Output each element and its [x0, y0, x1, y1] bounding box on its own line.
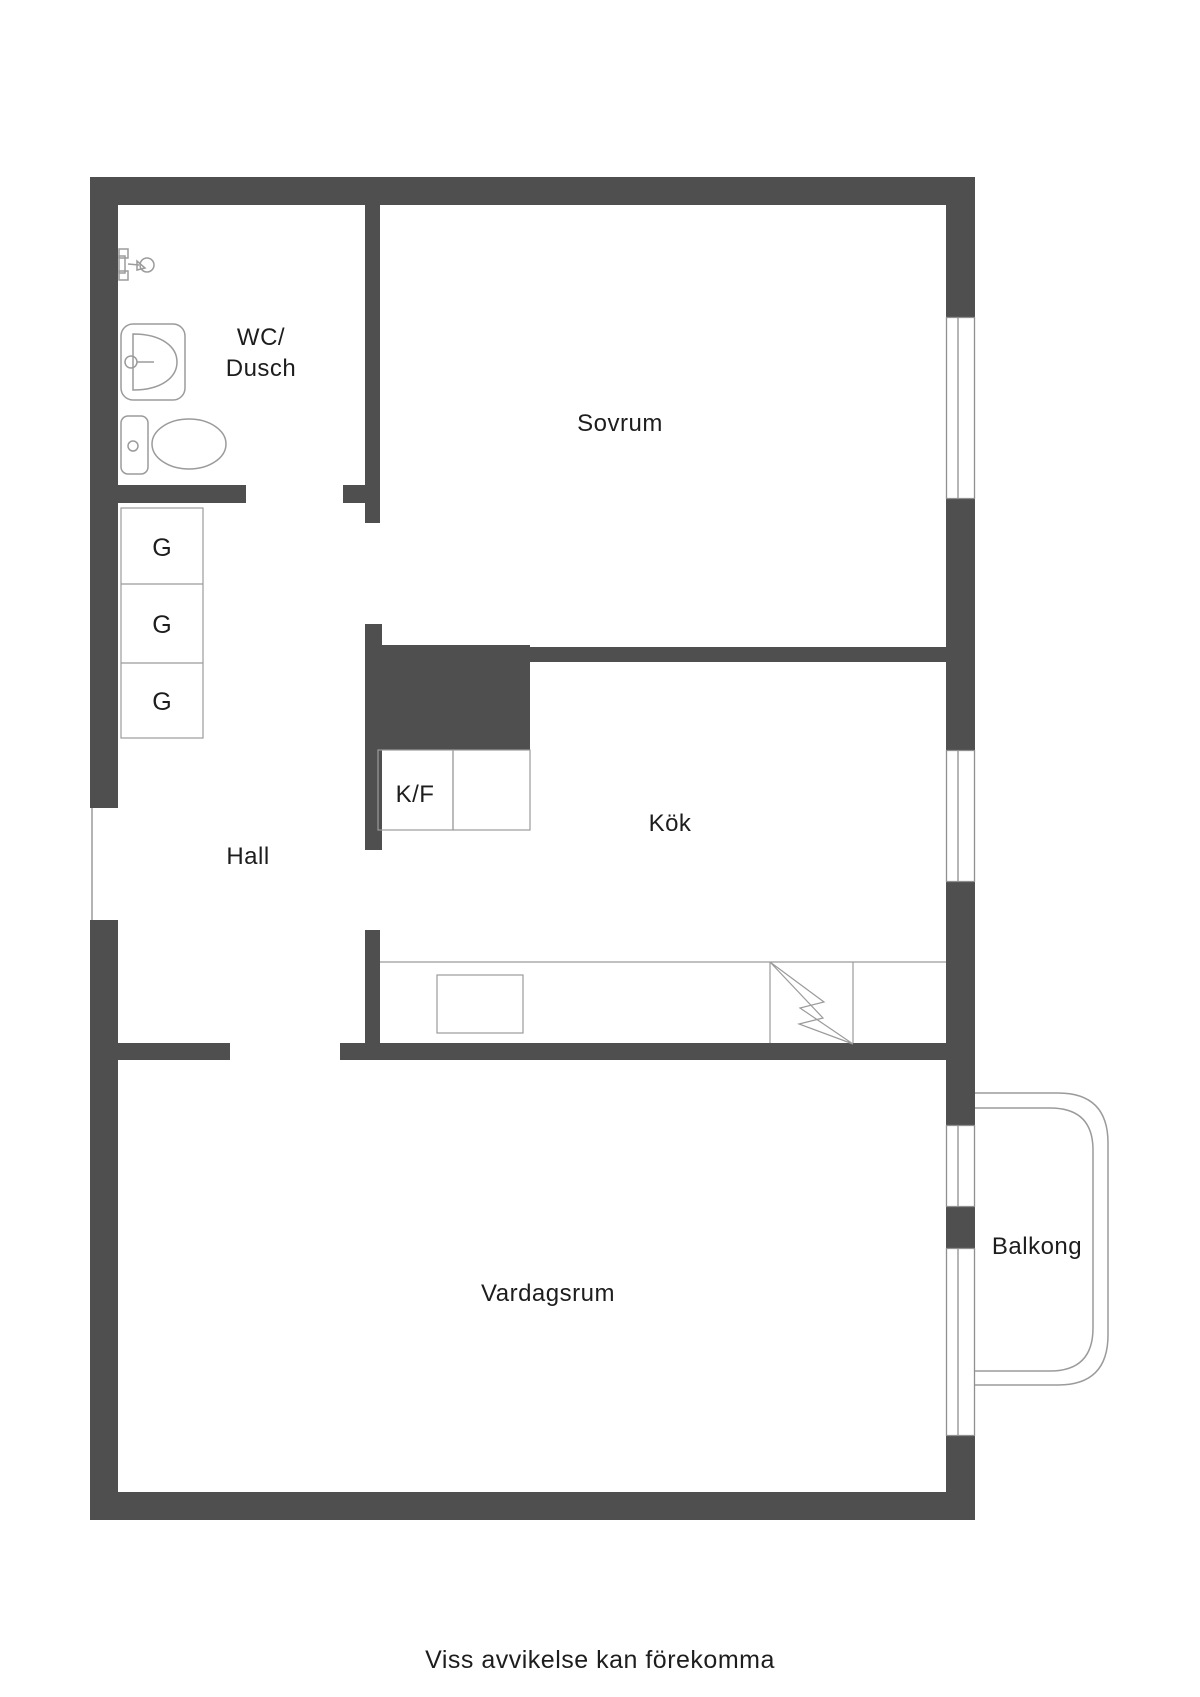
window-balcony-door	[946, 1248, 975, 1436]
wall-kitchen-left-lower	[365, 930, 380, 1043]
label-kok: Kök	[649, 810, 692, 837]
bathroom-sink-icon	[121, 324, 185, 400]
wall-sovrum-kok-divider	[530, 647, 946, 662]
wall-bathroom-bottom-left	[118, 485, 246, 503]
wall-kitchen-bottom	[340, 1043, 946, 1060]
wall-bottom	[90, 1492, 975, 1520]
wall-right-seg4	[946, 1207, 975, 1248]
label-hall: Hall	[226, 843, 269, 870]
wall-kf-block	[365, 645, 530, 750]
label-closet-1: G	[152, 534, 171, 562]
label-sovrum: Sovrum	[577, 410, 663, 437]
wall-right-seg3	[946, 882, 975, 1125]
wall-left-upper	[90, 177, 118, 808]
wall-bathroom-sovrum	[365, 205, 380, 523]
shower-icon	[119, 249, 154, 280]
stove-lightning-icon	[770, 962, 853, 1044]
label-balkong: Balkong	[992, 1233, 1082, 1260]
toilet-icon	[121, 416, 226, 474]
label-wc-line1: WC/	[237, 324, 285, 351]
label-kf: K/F	[396, 781, 435, 808]
label-vardagsrum: Vardagsrum	[481, 1280, 615, 1307]
walls-layer	[90, 177, 975, 1520]
windows-layer	[946, 317, 975, 1436]
floorplan-drawing: WC/ Dusch Sovrum G G G K/F Kök Hall Vard…	[0, 0, 1200, 1697]
window-vardagsrum-upper	[946, 1125, 975, 1207]
labels-layer: WC/ Dusch Sovrum G G G K/F Kök Hall Vard…	[152, 324, 1082, 1674]
kitchen-sink	[437, 975, 523, 1033]
wall-right-seg1	[946, 177, 975, 317]
kitchen-counter	[380, 962, 946, 1044]
floorplan-page: WC/ Dusch Sovrum G G G K/F Kök Hall Vard…	[0, 0, 1200, 1697]
window-kok	[946, 750, 975, 882]
wall-bathroom-bottom-right	[343, 485, 380, 503]
label-wc-line2: Dusch	[226, 355, 297, 382]
wall-top	[90, 177, 975, 205]
label-closet-2: G	[152, 611, 171, 639]
label-closet-3: G	[152, 688, 171, 716]
disclaimer-note: Viss avvikelse kan förekomma	[425, 1646, 775, 1674]
wall-right-seg5	[946, 1436, 975, 1520]
wall-hall-vardagsrum	[118, 1043, 230, 1060]
window-sovrum	[946, 317, 975, 499]
wall-right-seg2	[946, 499, 975, 750]
wall-left-lower	[90, 920, 118, 1520]
